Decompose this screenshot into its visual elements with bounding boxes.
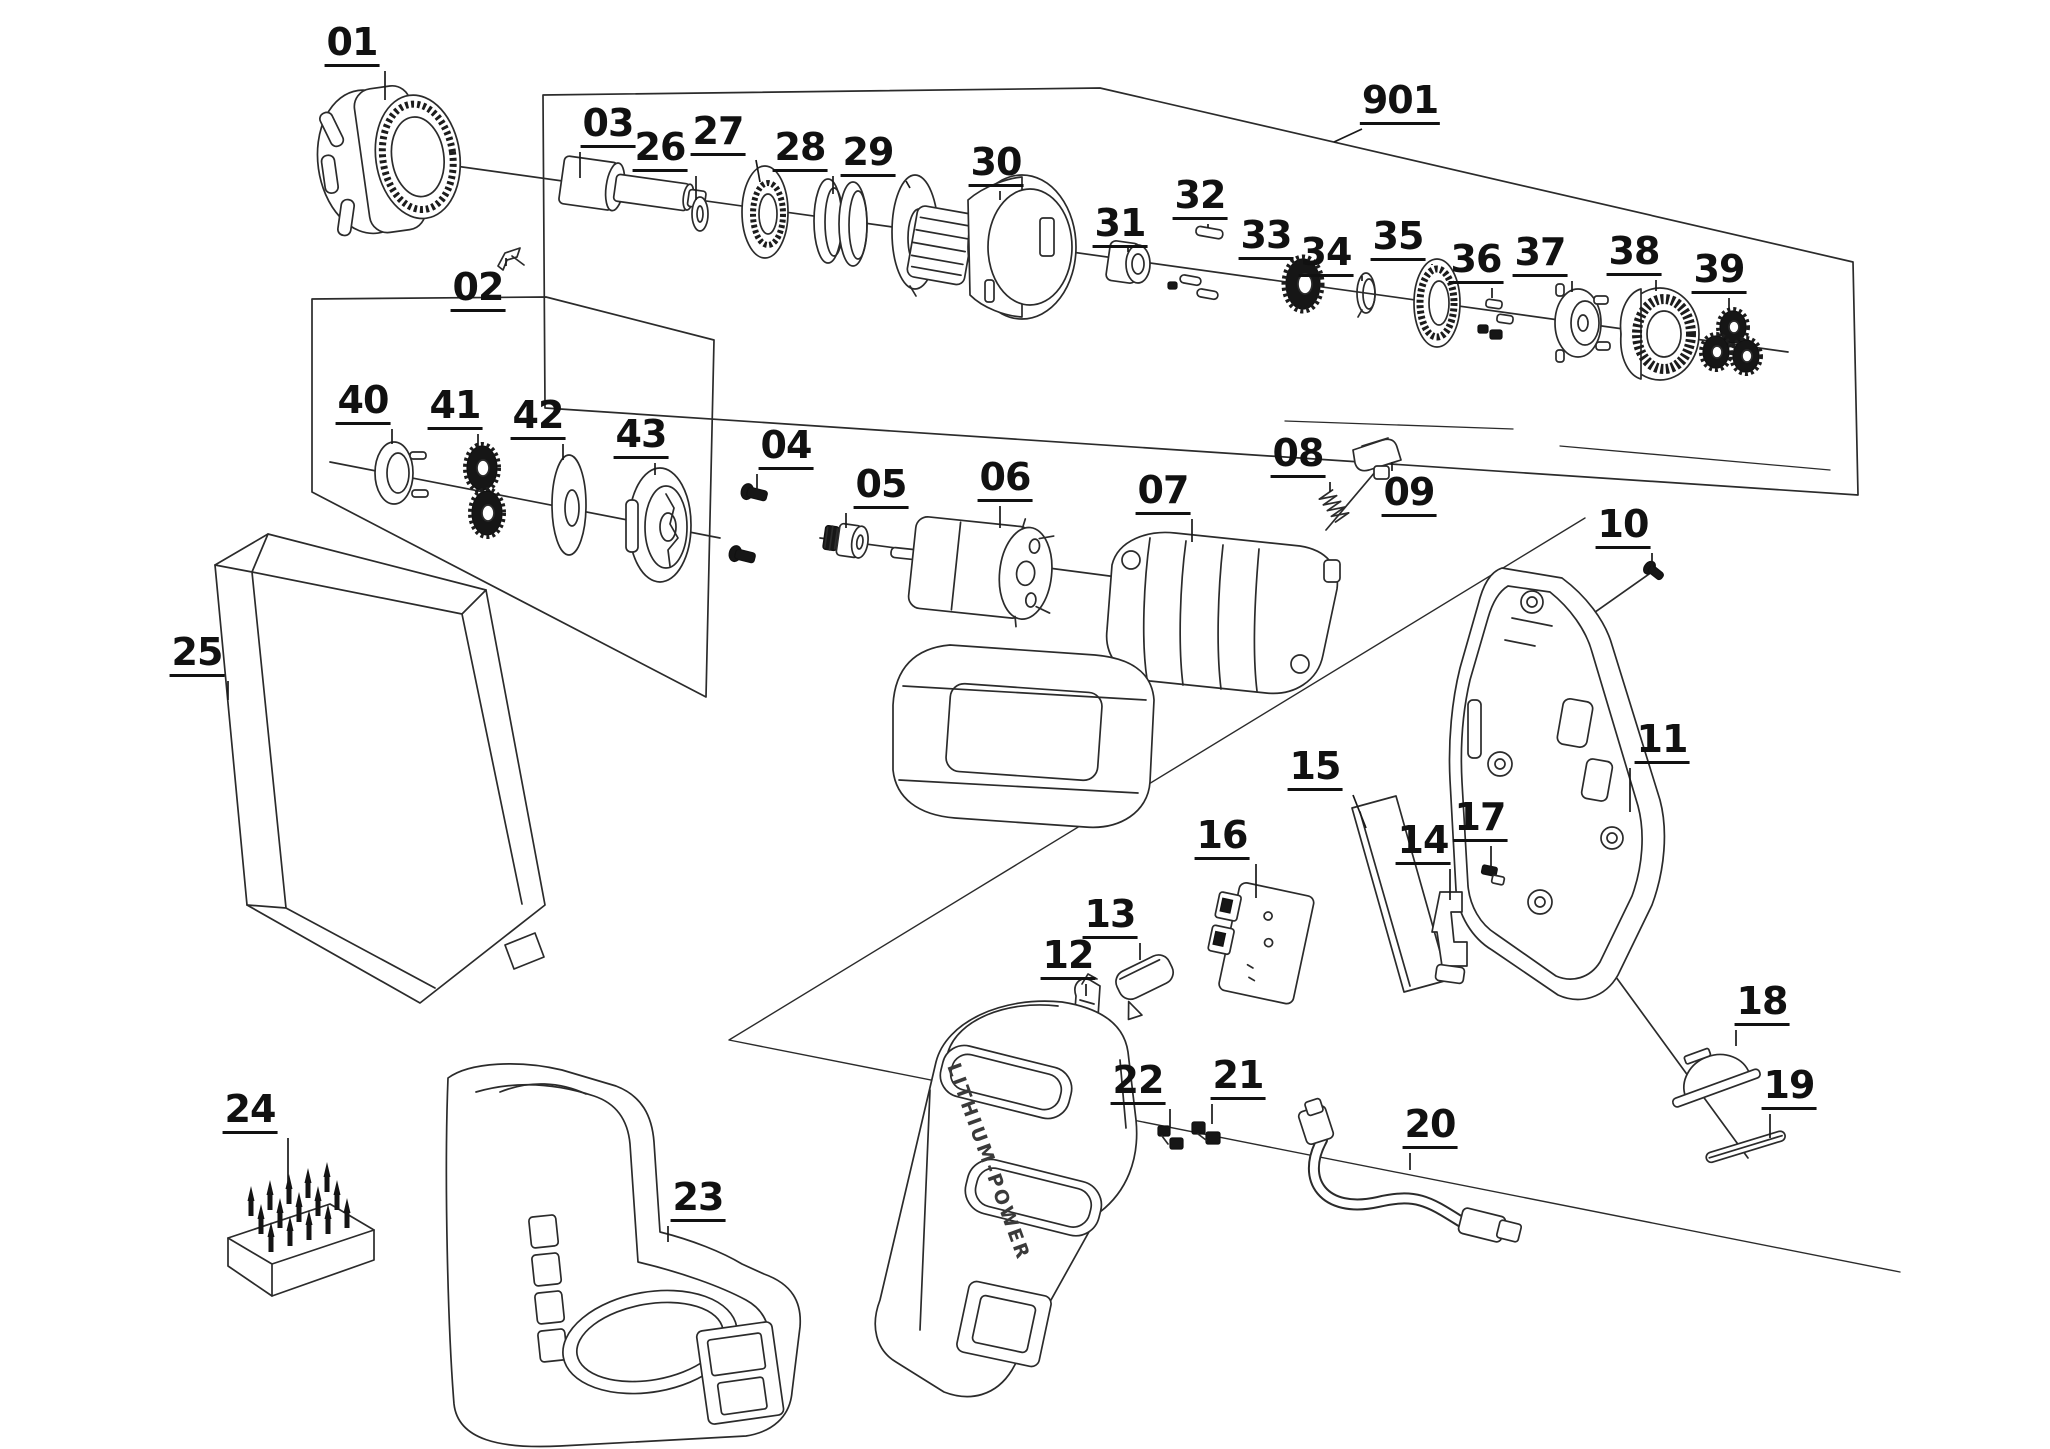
part-label-23: 23 bbox=[671, 1178, 726, 1222]
part-label-22: 22 bbox=[1111, 1061, 1166, 1105]
part-label-02: 02 bbox=[451, 268, 506, 312]
part-label-21: 21 bbox=[1211, 1056, 1266, 1100]
part-24 bbox=[228, 1162, 374, 1296]
part-06 bbox=[885, 505, 1059, 630]
part-14 bbox=[1432, 892, 1467, 984]
part-label-10: 10 bbox=[1596, 505, 1651, 549]
part-label-09: 09 bbox=[1382, 473, 1437, 517]
part-label-11: 11 bbox=[1635, 720, 1690, 764]
part-label-29: 29 bbox=[841, 133, 896, 177]
part-18 bbox=[1659, 1034, 1761, 1108]
part-label-24: 24 bbox=[223, 1090, 278, 1134]
leader-line-901 bbox=[1334, 129, 1362, 142]
part-26 bbox=[692, 197, 708, 231]
part-label-17: 17 bbox=[1453, 798, 1508, 842]
part-16 bbox=[1200, 878, 1315, 1005]
part-label-39: 39 bbox=[1692, 250, 1747, 294]
part-label-32: 32 bbox=[1173, 176, 1228, 220]
part-10 bbox=[1641, 559, 1666, 583]
exploded-parts-diagram: LITHIUM-POWER 01020326272829303132333435… bbox=[0, 0, 2050, 1449]
part-28 bbox=[814, 179, 867, 266]
part-38 bbox=[1621, 288, 1699, 380]
part-label-37: 37 bbox=[1513, 233, 1568, 277]
part-label-36: 36 bbox=[1449, 240, 1504, 284]
part-41 bbox=[465, 444, 504, 537]
part-label-18: 18 bbox=[1735, 982, 1790, 1026]
part-07 bbox=[1107, 532, 1340, 693]
part-label-30: 30 bbox=[969, 143, 1024, 187]
part-label-06: 06 bbox=[978, 458, 1033, 502]
part-label-38: 38 bbox=[1607, 232, 1662, 276]
part-23 bbox=[446, 1064, 800, 1447]
part-39 bbox=[1701, 309, 1761, 374]
part-label-41: 41 bbox=[428, 386, 483, 430]
part-label-35: 35 bbox=[1371, 217, 1426, 261]
part-13 bbox=[1108, 951, 1185, 1021]
part-label-04: 04 bbox=[759, 426, 814, 470]
part-label-31: 31 bbox=[1093, 204, 1148, 248]
diagram-canvas: LITHIUM-POWER bbox=[0, 0, 2050, 1449]
part-label-901: 901 bbox=[1360, 81, 1440, 125]
part-label-14: 14 bbox=[1396, 821, 1451, 865]
part-label-12: 12 bbox=[1041, 936, 1096, 980]
part-label-08: 08 bbox=[1271, 434, 1326, 478]
part-label-42: 42 bbox=[511, 396, 566, 440]
part-21 bbox=[1192, 1122, 1220, 1144]
part-label-16: 16 bbox=[1195, 816, 1250, 860]
part-04 bbox=[728, 482, 769, 566]
part-label-28: 28 bbox=[773, 128, 828, 172]
part-36 bbox=[1478, 299, 1513, 339]
part-label-05: 05 bbox=[854, 465, 909, 509]
part-label-26: 26 bbox=[633, 128, 688, 172]
part-label-33: 33 bbox=[1239, 216, 1294, 260]
part-25 bbox=[215, 534, 545, 1003]
handle-housing: LITHIUM-POWER bbox=[875, 1001, 1136, 1396]
part-label-01: 01 bbox=[325, 23, 380, 67]
part-label-40: 40 bbox=[336, 381, 391, 425]
part-label-43: 43 bbox=[614, 415, 669, 459]
part-34 bbox=[1357, 273, 1375, 317]
part-label-27: 27 bbox=[691, 112, 746, 156]
part-11 bbox=[1449, 568, 1664, 999]
part-27 bbox=[742, 166, 788, 258]
part-40 bbox=[375, 442, 428, 504]
part-07-lower-shell bbox=[893, 645, 1154, 827]
part-37 bbox=[1555, 284, 1610, 362]
part-01 bbox=[308, 78, 469, 241]
part-label-03: 03 bbox=[581, 104, 636, 148]
part-label-19: 19 bbox=[1762, 1066, 1817, 1110]
part-08 bbox=[1319, 490, 1348, 522]
part-label-07: 07 bbox=[1136, 471, 1191, 515]
part-label-20: 20 bbox=[1403, 1105, 1458, 1149]
part-19 bbox=[1705, 1130, 1786, 1164]
part-label-15: 15 bbox=[1288, 747, 1343, 791]
part-32 bbox=[1168, 226, 1223, 300]
part-43 bbox=[626, 468, 691, 582]
part-42 bbox=[552, 455, 586, 555]
part-label-25: 25 bbox=[170, 633, 225, 677]
part-label-34: 34 bbox=[1299, 233, 1354, 277]
